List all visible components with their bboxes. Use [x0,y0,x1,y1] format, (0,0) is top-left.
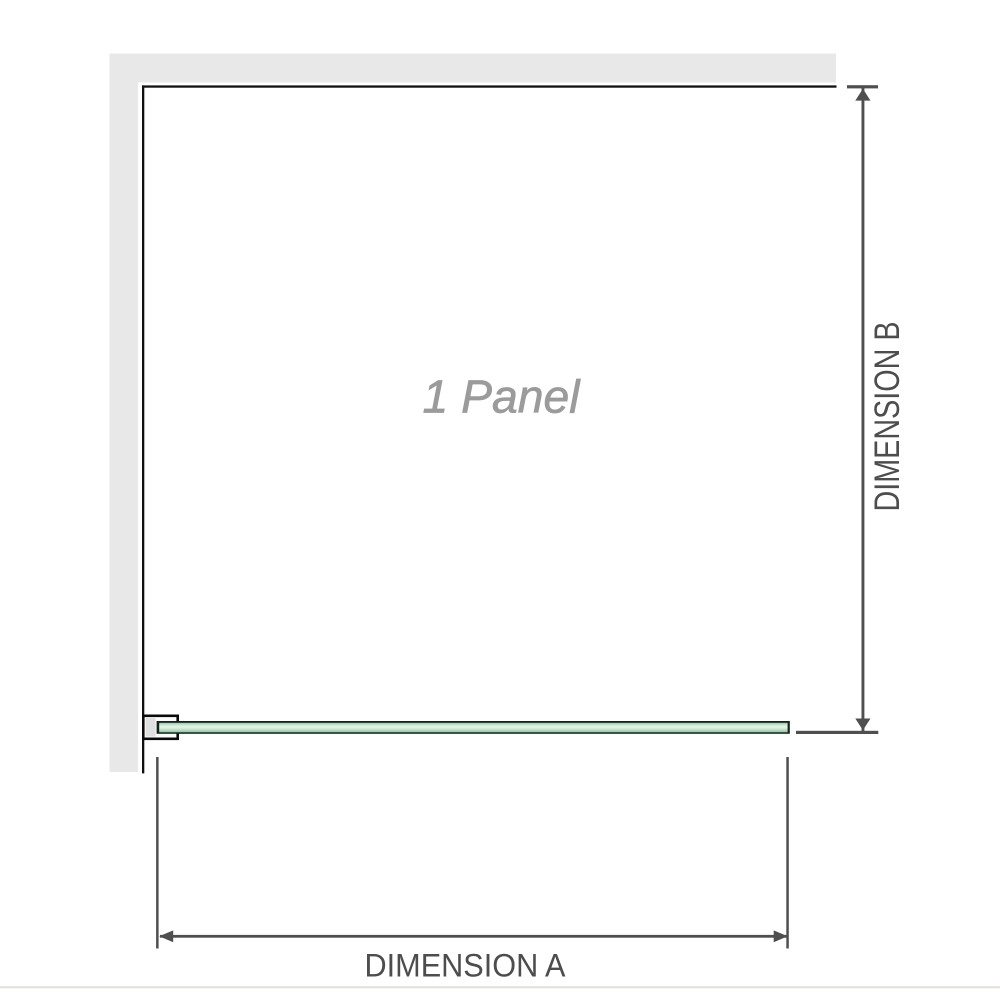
svg-text:DIMENSION B: DIMENSION B [868,322,907,512]
svg-text:1 Panel: 1 Panel [423,371,582,423]
svg-text:DIMENSION A: DIMENSION A [365,948,567,984]
